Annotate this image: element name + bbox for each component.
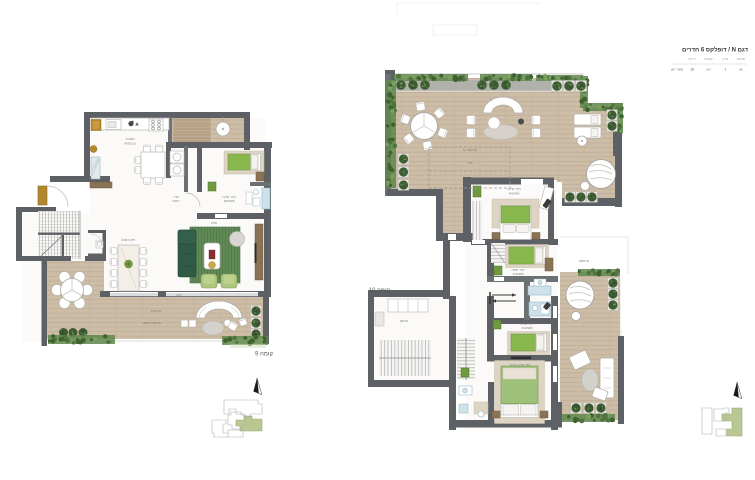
svg-text:חדר שינה הורים: חדר שינה הורים [510, 363, 531, 367]
svg-text:מאור הגן: מאור הגן [671, 68, 683, 72]
svg-text:16: 16 [690, 68, 694, 72]
svg-text:300/305: 300/305 [224, 199, 235, 203]
svg-text:105: 105 [467, 161, 472, 165]
svg-text:מרפסת גג: מרפסת גג [463, 148, 477, 152]
svg-text:קומות: קומות [704, 57, 712, 61]
svg-text:בניין: בניין [723, 57, 729, 61]
svg-text:ו-ט: ו-ט [706, 68, 710, 72]
svg-text:310/380: 310/380 [522, 326, 533, 330]
svg-text:מטבח: מטבח [126, 137, 135, 141]
svg-text:מרפסת: מרפסת [579, 259, 589, 263]
svg-text:דגם N / דופלקס 6 חדרים: דגם N / דופלקס 6 חדרים [682, 46, 748, 54]
svg-text:סלון: סלון [211, 221, 218, 225]
svg-text:מרפסת שמש: מרפסת שמש [143, 321, 161, 325]
svg-text:מחסן: מחסן [400, 319, 408, 323]
svg-text:חדר שינה: חדר שינה [507, 187, 520, 191]
svg-text:רחצה: רחצה [172, 199, 180, 203]
svg-text:קומה 9: קומה 9 [255, 352, 273, 358]
svg-text:1: 1 [725, 68, 727, 72]
svg-text:מגרש: מגרש [737, 57, 745, 61]
svg-text:מרפסת: מרפסת [151, 309, 162, 313]
svg-text:400/396: 400/396 [509, 192, 520, 196]
svg-text:310/380: 310/380 [513, 272, 524, 276]
svg-text:810: 810 [177, 293, 182, 297]
svg-text:דירות: דירות [688, 57, 696, 61]
svg-text:פינת אוכל: פינת אוכל [121, 238, 135, 242]
svg-text:קומה 10: קומה 10 [369, 288, 391, 294]
svg-text:405/215: 405/215 [124, 142, 135, 146]
